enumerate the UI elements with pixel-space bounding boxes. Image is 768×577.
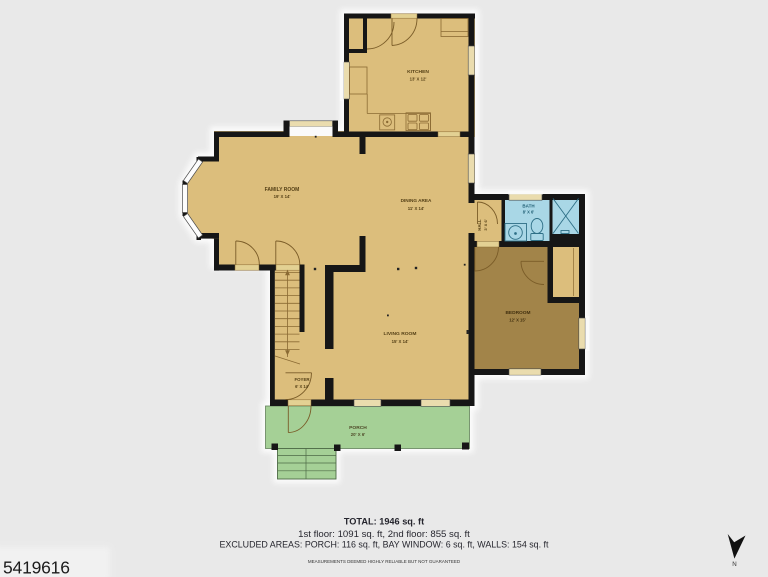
svg-text:N: N [732,561,736,568]
svg-text:11' X 14': 11' X 14' [408,206,425,211]
svg-text:5419616: 5419616 [3,558,70,577]
svg-text:6' X 14': 6' X 14' [295,384,309,389]
svg-text:LIVING ROOM: LIVING ROOM [384,331,417,337]
svg-text:BEDROOM: BEDROOM [505,310,530,316]
svg-text:HALL: HALL [477,219,482,231]
svg-text:BATH: BATH [522,204,534,209]
svg-text:MEASUREMENTS DEEMED HIGHLY REL: MEASUREMENTS DEEMED HIGHLY RELIABLE BUT … [308,559,461,564]
svg-text:FAMILY ROOM: FAMILY ROOM [265,187,300,193]
svg-text:KITCHEN: KITCHEN [407,69,429,75]
svg-text:1st floor: 1091 sq. ft, 2nd fl: 1st floor: 1091 sq. ft, 2nd floor: 855 s… [298,529,470,540]
svg-text:19' X 14': 19' X 14' [274,194,291,199]
svg-text:12' X 15': 12' X 15' [509,318,525,323]
svg-text:20' X 6': 20' X 6' [351,432,365,437]
svg-text:EXCLUDED AREAS: PORCH: 116 sq.: EXCLUDED AREAS: PORCH: 116 sq. ft, BAY W… [220,540,550,550]
svg-text:8' X 6': 8' X 6' [523,210,535,215]
svg-text:13' X 12': 13' X 12' [410,77,427,82]
svg-text:PORCH: PORCH [349,425,367,431]
svg-text:15' X 14': 15' X 14' [392,339,409,344]
svg-text:TOTAL: 1946 sq. ft: TOTAL: 1946 sq. ft [344,517,424,527]
svg-text:FOYER: FOYER [294,377,310,382]
svg-text:3' X 6': 3' X 6' [483,219,488,230]
svg-text:DINING AREA: DINING AREA [401,198,432,203]
